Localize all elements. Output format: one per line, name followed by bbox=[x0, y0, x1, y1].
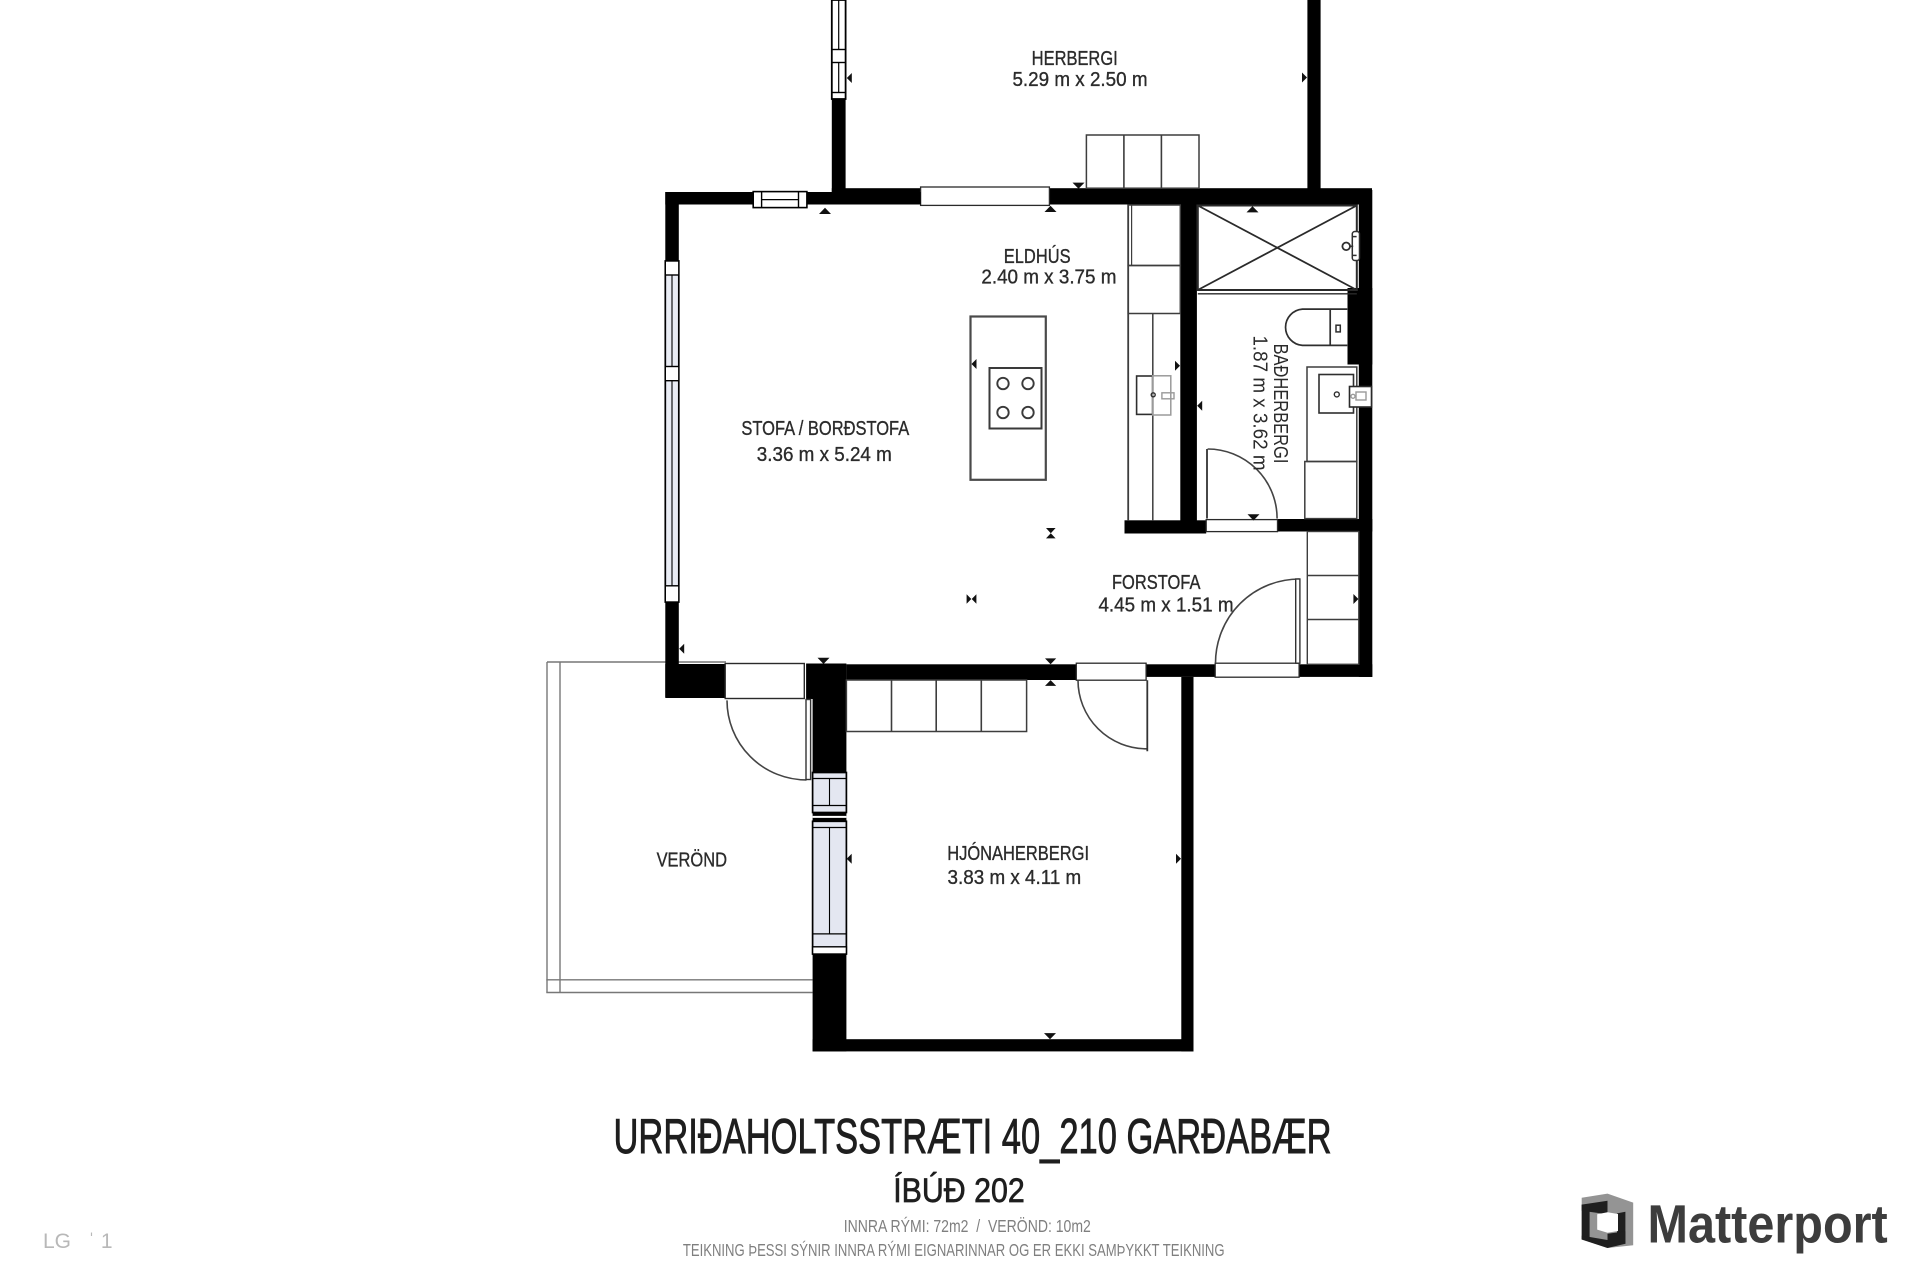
svg-text:ÍBÚÐ 202: ÍBÚÐ 202 bbox=[893, 1170, 1025, 1209]
svg-text:4.45 m x 1.51 m: 4.45 m x 1.51 m bbox=[1098, 594, 1233, 617]
svg-text:HERBERGI: HERBERGI bbox=[1032, 46, 1118, 69]
svg-text:3.36 m x 5.24 m: 3.36 m x 5.24 m bbox=[757, 443, 892, 466]
svg-text:HJÓNAHERBERGI: HJÓNAHERBERGI bbox=[947, 841, 1089, 864]
svg-text:5.29 m x 2.50 m: 5.29 m x 2.50 m bbox=[1012, 68, 1147, 91]
svg-text:INNRA RÝMI: 72m2 / VERÖND: 1: INNRA RÝMI: 72m2 / VERÖND: 10m2 bbox=[844, 1216, 1091, 1237]
svg-text:ˈ 1: ˈ 1 bbox=[88, 1230, 113, 1253]
svg-text:2.40 m x 3.75 m: 2.40 m x 3.75 m bbox=[981, 266, 1116, 289]
svg-text:STOFA / BORÐSTOFA: STOFA / BORÐSTOFA bbox=[741, 416, 909, 439]
svg-text:3.83 m x 4.11 m: 3.83 m x 4.11 m bbox=[948, 866, 1082, 889]
svg-text:TEIKNING ÞESSI SÝNIR INNRA RÝM: TEIKNING ÞESSI SÝNIR INNRA RÝMI EIGNARIN… bbox=[683, 1241, 1225, 1260]
svg-text:Matterport: Matterport bbox=[1648, 1193, 1888, 1254]
svg-text:1.87 m x 3.62 m: 1.87 m x 3.62 m bbox=[1248, 335, 1271, 470]
svg-text:URRIÐAHOLTSSTRÆTI 40_210 GARÐA: URRIÐAHOLTSSTRÆTI 40_210 GARÐABÆR bbox=[614, 1109, 1332, 1163]
svg-text:VERÖND: VERÖND bbox=[657, 848, 727, 871]
svg-text:FORSTOFA: FORSTOFA bbox=[1112, 570, 1201, 593]
svg-text:LG: LG bbox=[43, 1230, 71, 1253]
svg-text:ELDHÚS: ELDHÚS bbox=[1004, 244, 1071, 267]
svg-text:BAÐHERBERGI: BAÐHERBERGI bbox=[1269, 344, 1292, 464]
